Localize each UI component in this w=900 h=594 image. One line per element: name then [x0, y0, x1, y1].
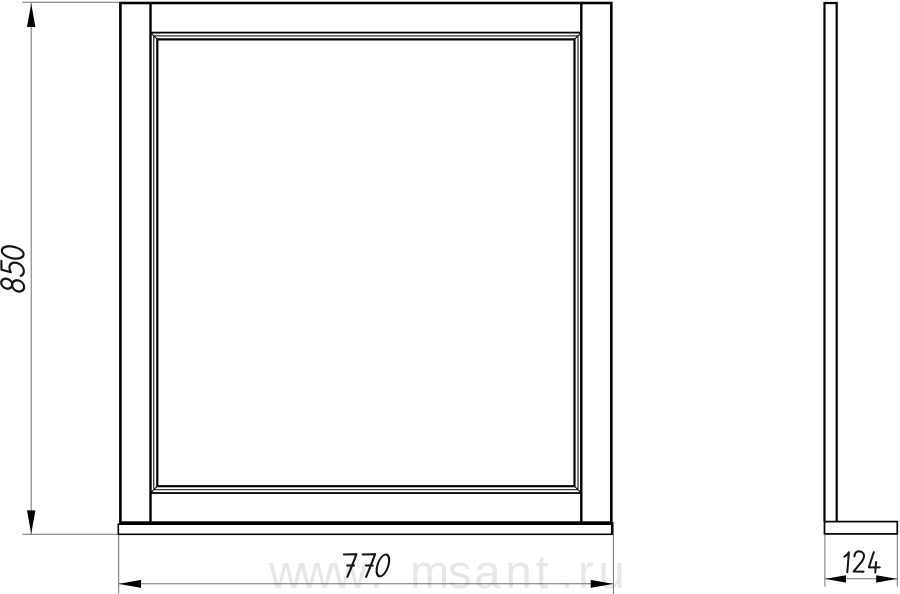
svg-text:www.msant.ru: www.msant.ru [268, 545, 625, 594]
